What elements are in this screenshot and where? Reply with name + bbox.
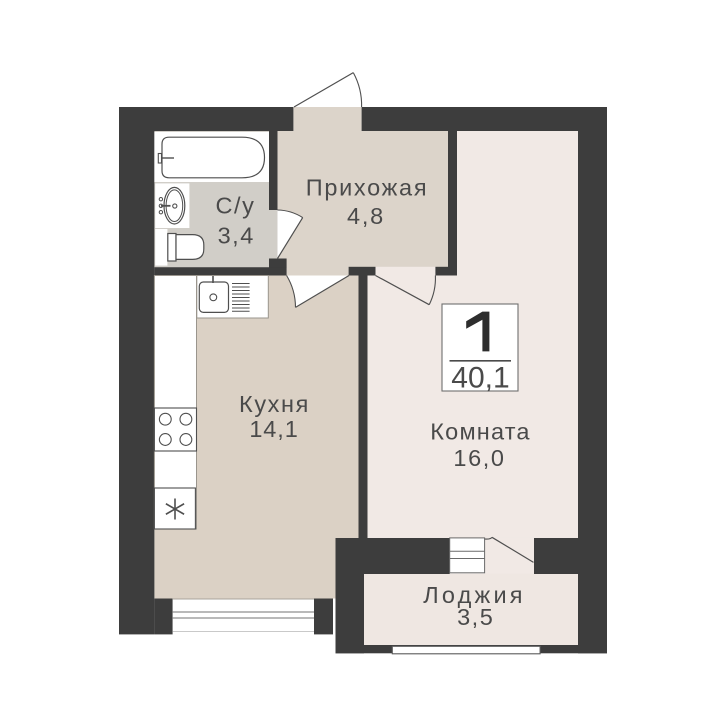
svg-text:Кухня: Кухня xyxy=(239,391,310,417)
svg-text:С/у: С/у xyxy=(215,193,255,219)
svg-text:14,1: 14,1 xyxy=(249,416,298,442)
svg-text:3,4: 3,4 xyxy=(218,223,255,249)
svg-text:3,5: 3,5 xyxy=(457,604,494,630)
svg-text:Прихожая: Прихожая xyxy=(306,175,429,201)
svg-text:40,1: 40,1 xyxy=(451,361,509,394)
svg-text:Комната: Комната xyxy=(430,419,530,445)
svg-text:4,8: 4,8 xyxy=(347,203,385,229)
svg-text:16,0: 16,0 xyxy=(453,445,505,471)
